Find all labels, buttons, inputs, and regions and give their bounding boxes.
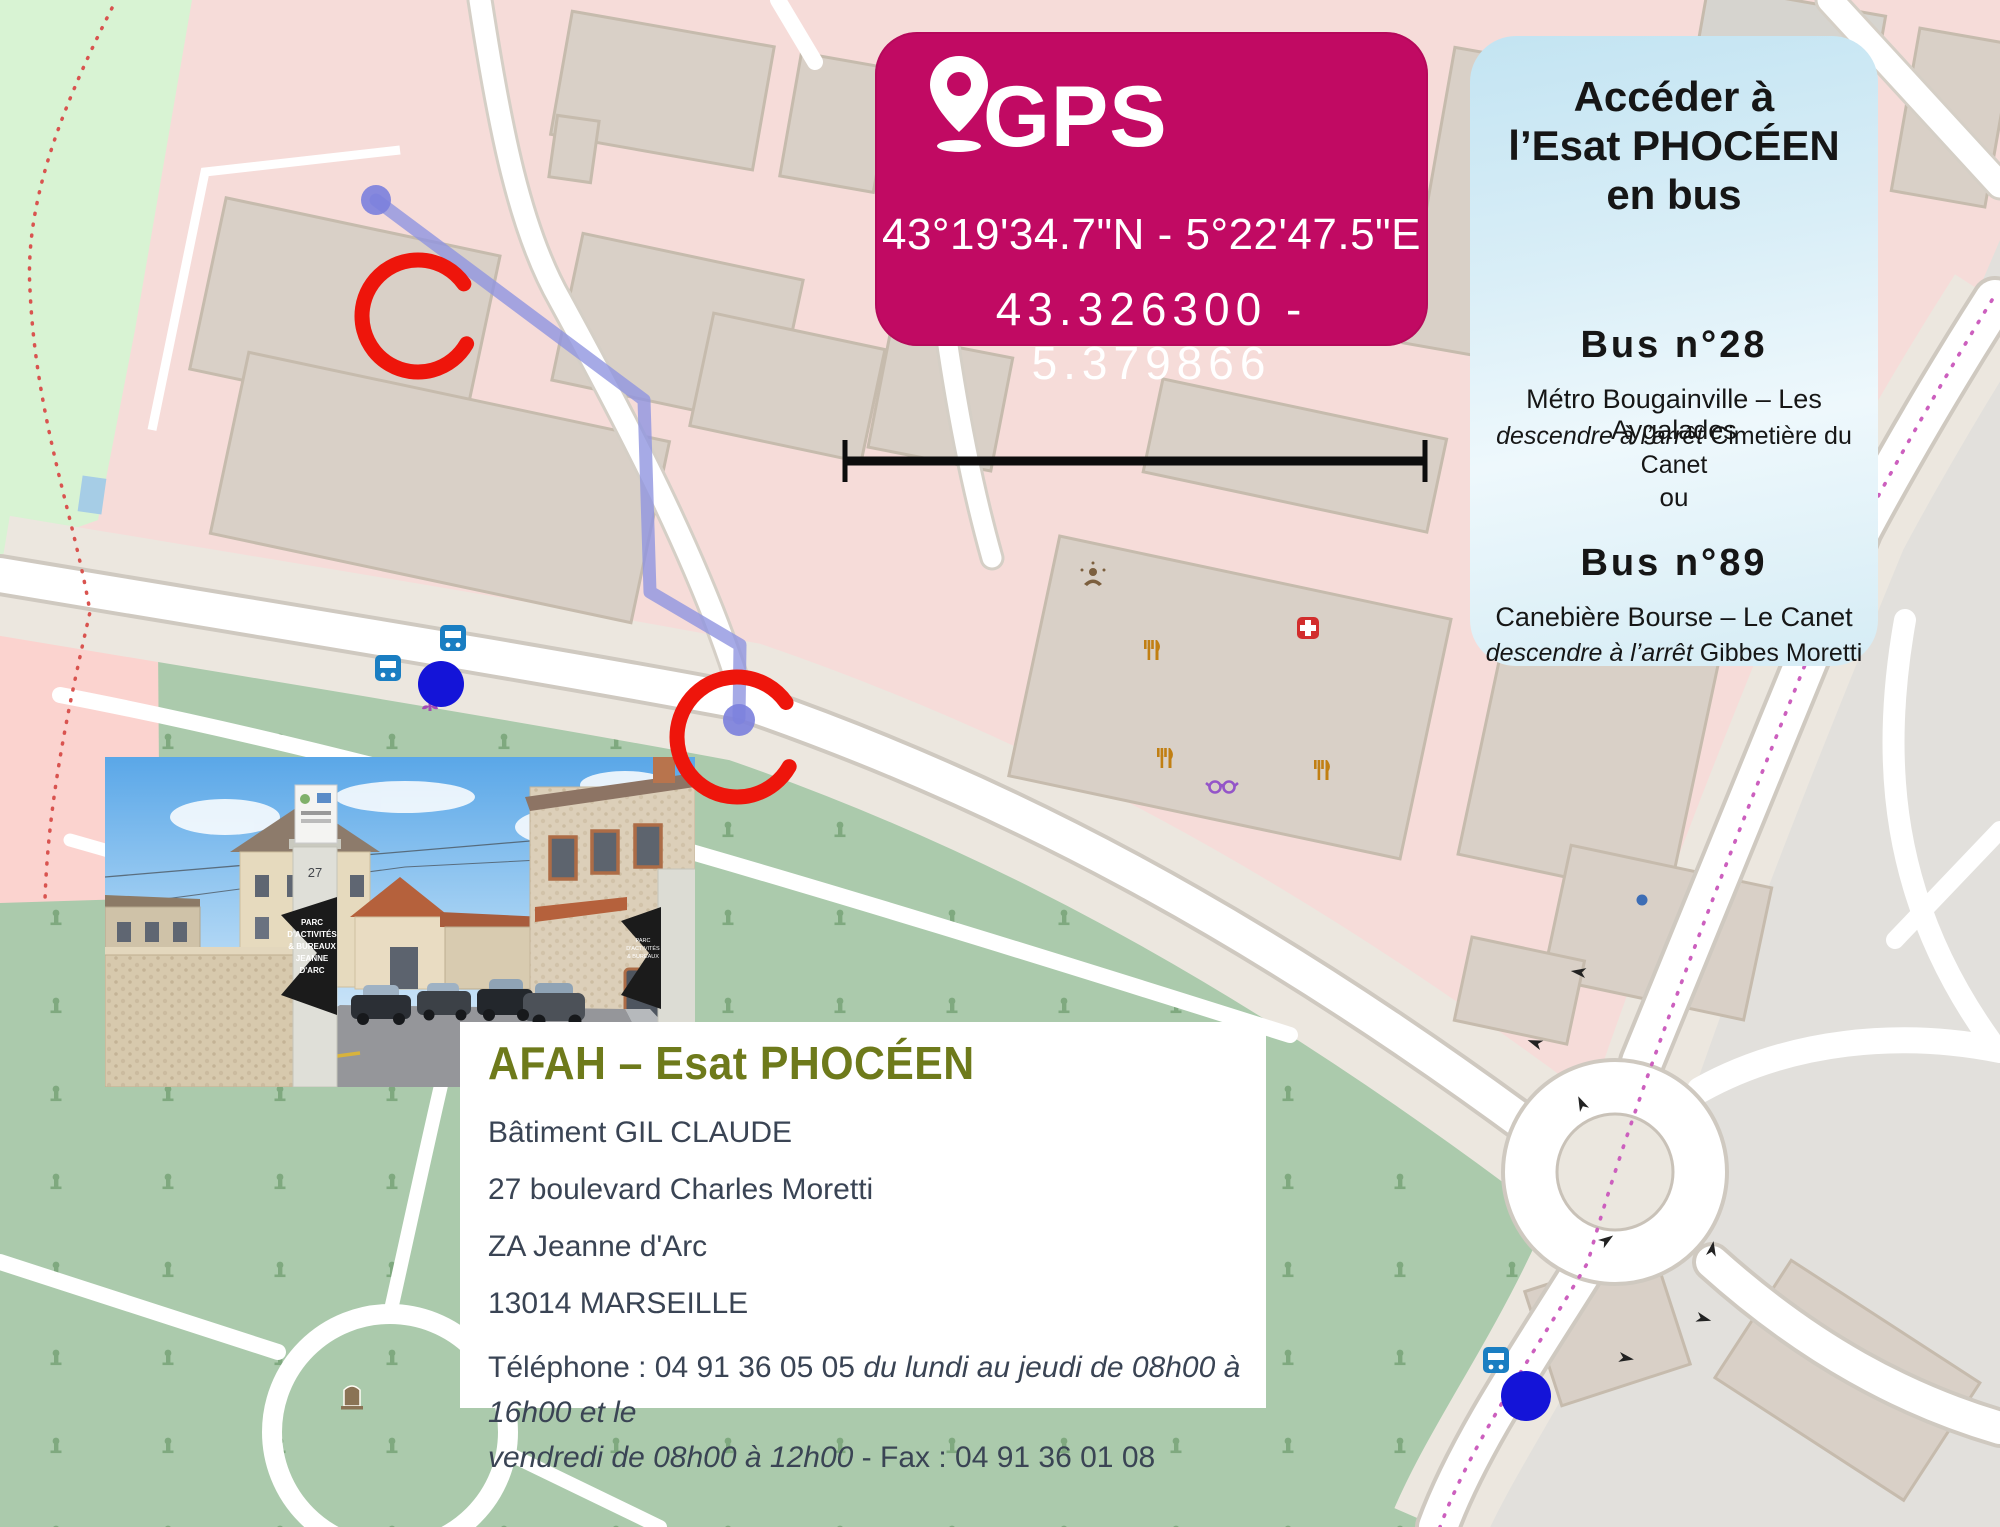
- pole-emploi-dot: [1637, 895, 1648, 906]
- photo-shed: [440, 912, 545, 989]
- bus-or-separator: ou: [1470, 482, 1878, 513]
- bus-card-title-l2: l’Esat PHOCÉEN: [1470, 121, 1878, 170]
- bus28-stop-prefix: descendre à l’arrêt: [1496, 422, 1710, 450]
- photo-sign-line1: PARC: [301, 918, 323, 927]
- bus89-stop-name: Gibbes Moretti: [1700, 639, 1863, 667]
- photo-sign-line5: D'ARC: [299, 966, 324, 975]
- photo-sign-line3: & BUREAUX: [288, 942, 336, 951]
- location-pin-icon: [927, 54, 991, 154]
- photo-sign-line2: D'ACTIVITÉS: [287, 930, 337, 939]
- gps-card: GPS 43°19'34.7"N - 5°22'47.5"E 43.326300…: [875, 32, 1428, 346]
- gps-title: GPS: [983, 68, 1168, 167]
- fax-number: - Fax : 04 91 36 01 08: [853, 1441, 1155, 1474]
- address-street: 27 boulevard Charles Moretti: [488, 1173, 1242, 1207]
- bus-stop-icon-gibbes: [1483, 1347, 1509, 1373]
- pool: [78, 476, 107, 515]
- address-phone-block: Téléphone : 04 91 36 05 05 du lundi au j…: [488, 1345, 1242, 1480]
- phone-number: Téléphone : 04 91 36 05 05: [488, 1351, 863, 1384]
- gps-coords-dms: 43°19'34.7"N - 5°22'47.5"E: [875, 210, 1428, 260]
- monument-icon: [341, 1386, 363, 1410]
- photo-sign2-line3: & BUREAUX: [627, 954, 659, 960]
- photo-gate-number: 27: [308, 865, 322, 880]
- bus-stop-icon-canet-1: [440, 625, 466, 651]
- address-card-title: AFAH – Esat PHOCÉEN: [488, 1036, 1189, 1090]
- address-city: 13014 MARSEILLE: [488, 1287, 1242, 1321]
- address-building: Bâtiment GIL CLAUDE: [488, 1116, 1242, 1150]
- photo-sign2-line1: PARC: [636, 938, 651, 944]
- bus-card-title-l3: en bus: [1470, 170, 1878, 219]
- bus89-stop: descendre à l’arrêt Gibbes Moretti: [1470, 639, 1878, 668]
- bus-access-card: Accéder à l’Esat PHOCÉEN en bus Bus n°28…: [1470, 36, 1878, 666]
- access-map-poster: 27 PARC D'ACTIVITÉS & BUREAUX JEANNE D'A…: [0, 0, 2000, 1527]
- photo-sign2-line2: D'ACTIVITÉS: [626, 945, 660, 952]
- gps-coords-decimal: 43.326300 - 5.379866: [875, 282, 1428, 390]
- hours-line2: vendredi de 08h00 à 12h00: [488, 1441, 853, 1474]
- medical-icon: [1297, 617, 1319, 639]
- bus89-stop-prefix: descendre à l’arrêt: [1486, 639, 1700, 667]
- bus89-route: Canebière Bourse – Le Canet: [1470, 602, 1878, 633]
- photo-sign-line4: JEANNE: [296, 954, 329, 963]
- address-zone: ZA Jeanne d'Arc: [488, 1230, 1242, 1264]
- bus89-name: Bus n°89: [1470, 542, 1878, 585]
- address-card: AFAH – Esat PHOCÉEN Bâtiment GIL CLAUDE …: [460, 1022, 1266, 1408]
- bus28-name: Bus n°28: [1470, 324, 1878, 367]
- photo-stone-wall: [105, 947, 295, 1087]
- bus28-stop: descendre à l’arrêt Cimetière du Canet: [1470, 422, 1878, 480]
- bus-stop-icon-canet-2: [375, 655, 401, 681]
- bus-card-title-l1: Accéder à: [1470, 72, 1878, 121]
- bus-card-title: Accéder à l’Esat PHOCÉEN en bus: [1470, 72, 1878, 219]
